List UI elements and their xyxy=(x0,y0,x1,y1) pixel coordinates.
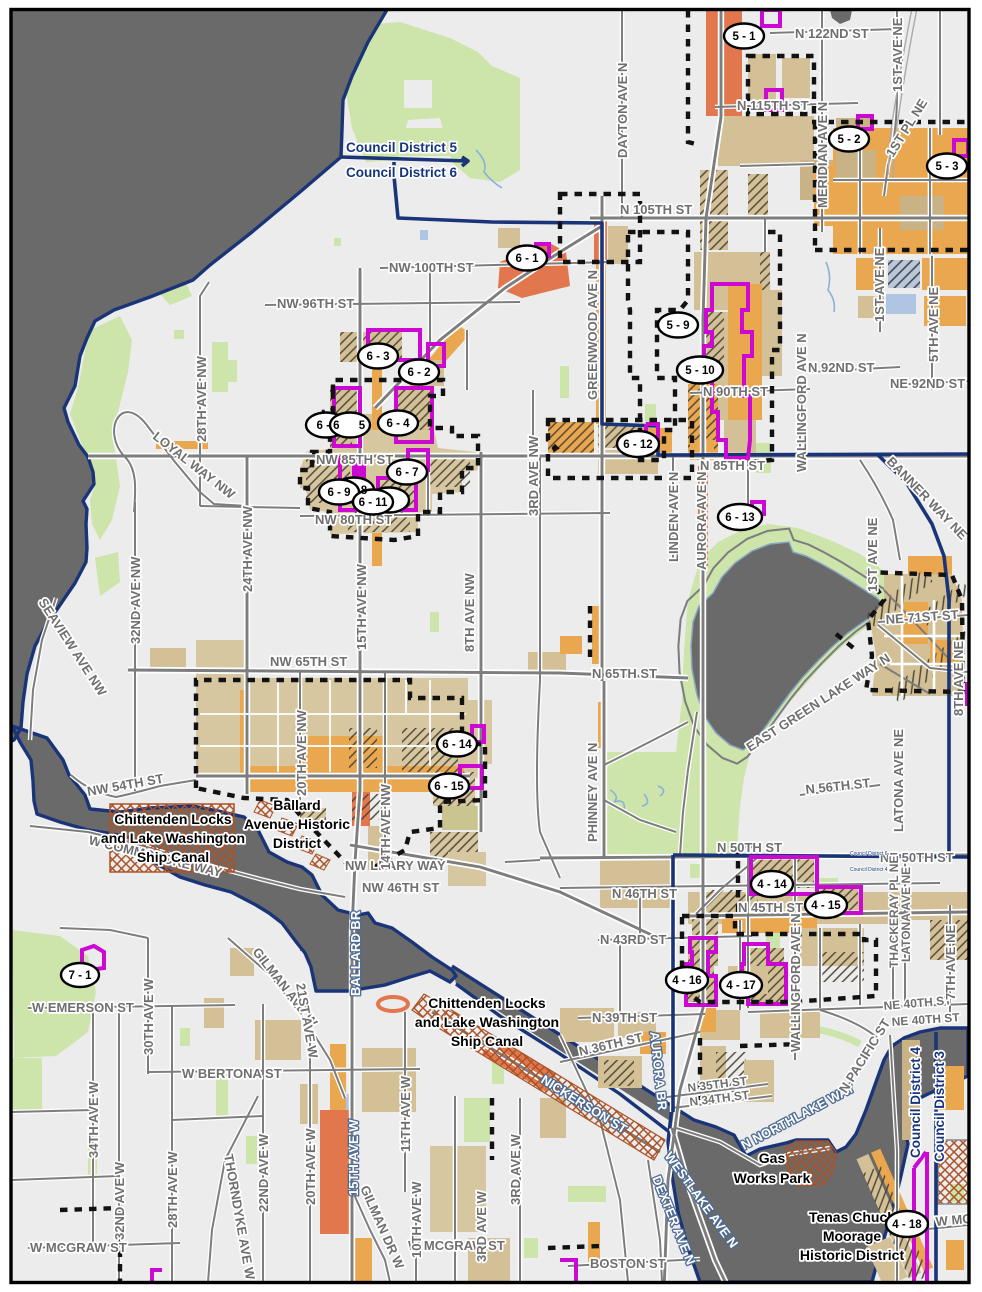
svg-text:10TH AVE W: 10TH AVE W xyxy=(409,1181,424,1258)
svg-text:1ST AVE NE: 1ST AVE NE xyxy=(890,17,905,92)
svg-text:4 - 14: 4 - 14 xyxy=(757,879,787,891)
svg-text:6 - 2: 6 - 2 xyxy=(407,367,430,379)
svg-text:Council District 4: Council District 4 xyxy=(850,867,888,873)
svg-text:4 - 15: 4 - 15 xyxy=(811,900,841,912)
svg-text:6 - 15: 6 - 15 xyxy=(434,781,464,793)
svg-text:W EMERSON ST: W EMERSON ST xyxy=(32,1000,134,1015)
svg-text:5 - 10: 5 - 10 xyxy=(685,365,714,377)
svg-text:Ballard: Ballard xyxy=(273,797,320,813)
svg-text:MERIDIAN AVE N: MERIDIAN AVE N xyxy=(815,102,830,208)
svg-text:6 - 9: 6 - 9 xyxy=(327,487,350,499)
svg-text:6 - 11: 6 - 11 xyxy=(359,497,388,509)
svg-text:NW 85TH ST: NW 85TH ST xyxy=(316,452,393,467)
svg-text:N 115TH ST: N 115TH ST xyxy=(737,98,809,113)
svg-text:Chittenden Locks: Chittenden Locks xyxy=(114,811,232,827)
svg-text:11TH AVE W: 11TH AVE W xyxy=(398,1075,413,1152)
svg-text:NW 46TH ST: NW 46TH ST xyxy=(362,880,439,895)
svg-text:N 45TH ST: N 45TH ST xyxy=(738,900,803,915)
svg-text:5 - 3: 5 - 3 xyxy=(935,161,958,173)
svg-text:7 - 1: 7 - 1 xyxy=(68,970,92,982)
svg-text:GREENWOOD AVE N: GREENWOOD AVE N xyxy=(585,270,600,400)
svg-text:N 85TH ST: N 85TH ST xyxy=(700,458,765,473)
svg-text:20TH AVE NW: 20TH AVE NW xyxy=(294,709,309,796)
svg-text:3RD AVE NW: 3RD AVE NW xyxy=(526,435,541,516)
svg-text:15TH AVE W: 15TH AVE W xyxy=(346,1119,361,1196)
svg-text:N 39TH ST: N 39TH ST xyxy=(592,1010,657,1025)
svg-text:DAYTON AVE N: DAYTON AVE N xyxy=(615,63,630,158)
svg-text:14TH AVE NW: 14TH AVE NW xyxy=(378,783,393,870)
svg-text:N 43RD ST: N 43RD ST xyxy=(600,932,667,947)
svg-text:Gas: Gas xyxy=(759,1150,786,1166)
svg-text:LINDEN AVE N: LINDEN AVE N xyxy=(666,472,681,562)
svg-text:N 105TH ST: N 105TH ST xyxy=(620,202,692,217)
svg-text:Council District 4: Council District 4 xyxy=(908,1046,923,1158)
svg-text:8TH AVE NW: 8TH AVE NW xyxy=(462,573,477,652)
svg-text:Works Park: Works Park xyxy=(734,1170,811,1186)
svg-text:28TH AVE NW: 28TH AVE NW xyxy=(194,355,209,442)
svg-text:Council District 6: Council District 6 xyxy=(850,851,888,857)
svg-text:and Lake Washington: and Lake Washington xyxy=(415,1014,559,1030)
svg-text:8: 8 xyxy=(361,485,368,497)
svg-text:5 - 2: 5 - 2 xyxy=(837,134,860,146)
svg-text:WALLINGFORD AVE N: WALLINGFORD AVE N xyxy=(794,333,809,472)
svg-text:W BERTONA ST: W BERTONA ST xyxy=(182,1066,282,1081)
svg-text:Council District 3: Council District 3 xyxy=(932,1050,947,1162)
svg-text:Moorage: Moorage xyxy=(823,1228,882,1244)
svg-text:22ND AVE W: 22ND AVE W xyxy=(256,1133,271,1212)
svg-text:6 - 6: 6 - 6 xyxy=(316,420,339,432)
svg-text:7TH AVE NE: 7TH AVE NE xyxy=(943,925,958,1000)
svg-text:District: District xyxy=(273,835,322,851)
svg-text:5TH AVE NE: 5TH AVE NE xyxy=(926,287,941,362)
svg-text:N 65TH ST: N 65TH ST xyxy=(592,666,657,681)
svg-text:6 - 3: 6 - 3 xyxy=(366,351,389,363)
svg-text:NW LEARY WAY: NW LEARY WAY xyxy=(345,858,446,873)
svg-text:NE 92ND ST: NE 92ND ST xyxy=(890,376,965,391)
svg-text:6 - 7: 6 - 7 xyxy=(395,467,418,479)
svg-text:Ship Canal: Ship Canal xyxy=(137,849,209,865)
svg-text:Tenas Chuck: Tenas Chuck xyxy=(809,1209,895,1225)
svg-text:Avenue Historic: Avenue Historic xyxy=(244,816,350,832)
svg-text:Chittenden Locks: Chittenden Locks xyxy=(428,995,546,1011)
svg-text:and Lake Washington: and Lake Washington xyxy=(101,830,245,846)
svg-text:1ST AVE NE: 1ST AVE NE xyxy=(865,517,880,592)
svg-text:5 - 9: 5 - 9 xyxy=(666,320,689,332)
svg-text:PHINNEY AVE N: PHINNEY AVE N xyxy=(585,743,600,842)
svg-text:LATONA AVE NE: LATONA AVE NE xyxy=(891,729,906,832)
svg-text:4 - 18: 4 - 18 xyxy=(892,1219,922,1231)
svg-text:20TH AVE W: 20TH AVE W xyxy=(303,1128,318,1205)
svg-text:Council District 5: Council District 5 xyxy=(346,140,458,155)
svg-text:NW 100TH ST: NW 100TH ST xyxy=(389,260,474,275)
svg-text:Historic District: Historic District xyxy=(800,1247,905,1263)
svg-text:24TH AVE NW: 24TH AVE NW xyxy=(240,505,255,592)
svg-text:N 46TH ST: N 46TH ST xyxy=(612,886,677,901)
svg-text:28TH AVE W: 28TH AVE W xyxy=(165,1151,180,1228)
svg-text:6 - 13: 6 - 13 xyxy=(725,512,754,524)
svg-text:4 - 16: 4 - 16 xyxy=(672,975,701,987)
svg-text:N 122ND ST: N 122ND ST xyxy=(795,26,869,41)
svg-text:32ND AVE W: 32ND AVE W xyxy=(112,1161,127,1240)
svg-text:N 90TH ST: N 90TH ST xyxy=(703,384,768,399)
svg-text:Ship Canal: Ship Canal xyxy=(451,1033,523,1049)
svg-text:6 - 14: 6 - 14 xyxy=(442,739,472,751)
svg-text:15TH AVE NW: 15TH AVE NW xyxy=(354,563,369,650)
svg-text:8TH AVE NE: 8TH AVE NE xyxy=(951,641,966,716)
svg-text:4 - 17: 4 - 17 xyxy=(726,980,755,992)
svg-text:5: 5 xyxy=(359,420,366,432)
svg-text:3RD AVE W: 3RD AVE W xyxy=(474,1190,489,1262)
svg-text:32ND AVE NW: 32ND AVE NW xyxy=(128,556,143,644)
svg-text:6 - 12: 6 - 12 xyxy=(623,439,652,451)
svg-text:LATONA AVE NE: LATONA AVE NE xyxy=(899,867,913,962)
svg-text:34TH AVE W: 34TH AVE W xyxy=(86,1081,101,1158)
svg-text:AURORA AVE N: AURORA AVE N xyxy=(694,472,709,570)
svg-text:BALLARD BR: BALLARD BR xyxy=(348,910,363,996)
svg-text:3RD AVE W: 3RD AVE W xyxy=(508,1133,523,1205)
svg-text:6 - 4: 6 - 4 xyxy=(386,418,410,430)
svg-text:WALLINGFORD AVE N: WALLINGFORD AVE N xyxy=(788,913,803,1052)
svg-text:5 - 1: 5 - 1 xyxy=(732,31,756,43)
svg-text:NW 65TH ST: NW 65TH ST xyxy=(270,654,347,669)
svg-text:W MCGRAW ST: W MCGRAW ST xyxy=(30,1240,127,1255)
svg-text:NW 96TH ST: NW 96TH ST xyxy=(277,296,354,311)
svg-text:Council District 6: Council District 6 xyxy=(346,165,458,180)
svg-text:N 92ND ST: N 92ND ST xyxy=(808,360,875,375)
svg-text:BOSTON ST: BOSTON ST xyxy=(590,1256,666,1271)
svg-text:6 - 1: 6 - 1 xyxy=(515,253,539,265)
svg-text:N 50TH ST: N 50TH ST xyxy=(717,840,782,855)
svg-text:30TH AVE W: 30TH AVE W xyxy=(141,978,156,1055)
svg-text:1ST AVE NE: 1ST AVE NE xyxy=(872,247,887,322)
